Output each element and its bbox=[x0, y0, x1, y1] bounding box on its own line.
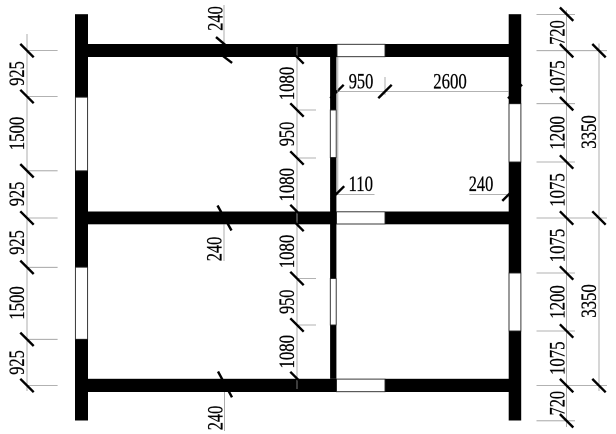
svg-text:1075: 1075 bbox=[545, 342, 570, 376]
svg-text:1075: 1075 bbox=[545, 173, 570, 207]
svg-text:1075: 1075 bbox=[545, 60, 570, 94]
svg-text:2600: 2600 bbox=[433, 69, 467, 94]
svg-text:240: 240 bbox=[201, 237, 226, 262]
svg-text:925: 925 bbox=[4, 350, 29, 375]
svg-text:1200: 1200 bbox=[545, 116, 570, 150]
svg-text:240: 240 bbox=[203, 6, 228, 31]
svg-text:1080: 1080 bbox=[274, 67, 299, 101]
svg-text:110: 110 bbox=[349, 171, 374, 196]
svg-text:925: 925 bbox=[4, 182, 29, 207]
svg-text:1080: 1080 bbox=[274, 168, 299, 202]
svg-text:950: 950 bbox=[274, 122, 299, 147]
svg-text:720: 720 bbox=[545, 20, 570, 45]
svg-text:1500: 1500 bbox=[4, 117, 29, 151]
svg-text:925: 925 bbox=[4, 61, 29, 86]
svg-text:1080: 1080 bbox=[274, 235, 299, 269]
svg-text:240: 240 bbox=[469, 171, 494, 196]
svg-text:3350: 3350 bbox=[576, 284, 601, 318]
svg-text:950: 950 bbox=[349, 69, 374, 94]
svg-text:1200: 1200 bbox=[545, 285, 570, 319]
svg-text:1500: 1500 bbox=[4, 286, 29, 320]
svg-text:240: 240 bbox=[203, 406, 228, 431]
svg-text:720: 720 bbox=[545, 391, 570, 416]
svg-text:925: 925 bbox=[4, 230, 29, 255]
svg-text:950: 950 bbox=[274, 290, 299, 315]
svg-text:1075: 1075 bbox=[545, 229, 570, 263]
svg-text:1080: 1080 bbox=[274, 335, 299, 369]
svg-text:3350: 3350 bbox=[576, 115, 601, 149]
